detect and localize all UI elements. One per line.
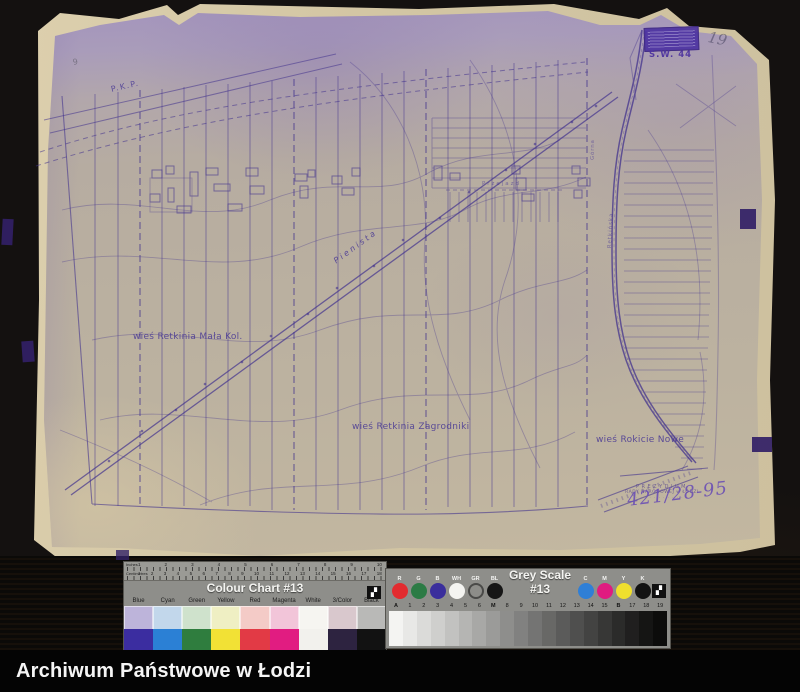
grey-step-label: 17 bbox=[625, 601, 639, 611]
ruler-ticks bbox=[127, 576, 383, 580]
patch-circle bbox=[468, 583, 484, 599]
grey-step-label: 4 bbox=[445, 601, 459, 611]
colour-patch: Y bbox=[614, 576, 633, 599]
ruler-unit-inches: Inches bbox=[126, 562, 138, 567]
grey-step-label: 9 bbox=[514, 601, 528, 611]
colour-column-label: Green bbox=[182, 597, 211, 606]
grey-step: M bbox=[486, 601, 500, 646]
grey-step: 12 bbox=[556, 601, 570, 646]
grey-step-patch bbox=[389, 611, 403, 646]
grey-step: 14 bbox=[584, 601, 598, 646]
colour-column: Red bbox=[240, 597, 269, 650]
colour-patch: BL bbox=[485, 576, 504, 599]
colour-swatch-dark bbox=[299, 629, 328, 650]
tape-mark bbox=[116, 550, 129, 560]
colour-swatch-dark bbox=[270, 629, 299, 650]
colour-swatch-light bbox=[299, 606, 328, 629]
grey-step-label: 3 bbox=[431, 601, 445, 611]
colour-column: Yellow bbox=[211, 597, 240, 650]
patch-label: C bbox=[584, 576, 588, 583]
colour-swatch-light bbox=[270, 606, 299, 629]
grey-step: 5 bbox=[459, 601, 473, 646]
patch-circle bbox=[578, 583, 594, 599]
grey-step-label: 5 bbox=[459, 601, 473, 611]
chart-maker-logo: ▞ bbox=[652, 584, 666, 598]
rgb-patches: R G B WH bbox=[390, 576, 504, 599]
colour-column: Blue bbox=[124, 597, 153, 650]
archive-name: Archiwum Państwowe w Łodzi bbox=[16, 660, 311, 683]
grey-step-label: 10 bbox=[528, 601, 542, 611]
patch-label: K bbox=[641, 576, 645, 583]
colour-column-label: Yellow bbox=[211, 597, 240, 606]
ruler-unit-centimetres: Centimetres bbox=[126, 571, 148, 576]
colour-column: Black bbox=[357, 597, 386, 650]
grey-step-patch bbox=[459, 611, 473, 646]
colour-patch: G bbox=[409, 576, 428, 599]
patch-label: R bbox=[398, 576, 402, 583]
grey-step-patch bbox=[486, 611, 500, 646]
grey-step: B bbox=[612, 601, 626, 646]
grey-step-label: 14 bbox=[584, 601, 598, 611]
grey-step-label: 11 bbox=[542, 601, 556, 611]
grey-step-label: 19 bbox=[653, 601, 667, 611]
grey-scale-title: Grey Scale #13 bbox=[504, 568, 576, 599]
patch-label: M bbox=[602, 576, 607, 583]
grey-steps: A 1 2 3 4 bbox=[389, 601, 667, 646]
grey-step-patch bbox=[625, 611, 639, 646]
tape-mark bbox=[752, 437, 772, 452]
grey-step: 6 bbox=[472, 601, 486, 646]
grey-step: 18 bbox=[639, 601, 653, 646]
colour-patch: WH bbox=[447, 576, 466, 599]
patch-circle bbox=[635, 583, 651, 599]
grey-step-patch bbox=[445, 611, 459, 646]
colour-column: White bbox=[299, 597, 328, 650]
grey-step: 8 bbox=[500, 601, 514, 646]
grey-step-label: A bbox=[389, 601, 403, 611]
colour-columns: Blue Cyan Green Yellow bbox=[124, 597, 386, 650]
grey-step: 15 bbox=[598, 601, 612, 646]
colour-column-label: Blue bbox=[124, 597, 153, 606]
colour-swatch-dark bbox=[328, 629, 357, 650]
colour-column-label: 3/Color bbox=[328, 597, 357, 606]
colour-swatch-dark bbox=[153, 629, 182, 650]
grey-step: 17 bbox=[625, 601, 639, 646]
patch-circle bbox=[616, 583, 632, 599]
grey-step-patch bbox=[514, 611, 528, 646]
patch-label: B bbox=[436, 576, 440, 583]
archival-scan: P.K.P. Pienista wieś Retkinia Mała Kol. … bbox=[0, 0, 800, 692]
colour-swatch-dark bbox=[124, 629, 153, 650]
grey-step: 3 bbox=[431, 601, 445, 646]
grey-step: A bbox=[389, 601, 403, 646]
grey-step-label: 8 bbox=[500, 601, 514, 611]
colour-column: Magenta bbox=[270, 597, 299, 650]
grey-step: 4 bbox=[445, 601, 459, 646]
grey-step-patch bbox=[556, 611, 570, 646]
grey-step: 1 bbox=[403, 601, 417, 646]
grey-step-patch bbox=[403, 611, 417, 646]
grey-step-label: M bbox=[486, 601, 500, 611]
grey-step: 10 bbox=[528, 601, 542, 646]
village-label-retkinia-mala: wieś Retkinia Mała Kol. bbox=[133, 332, 243, 342]
grey-step: 2 bbox=[417, 601, 431, 646]
grey-step-patch bbox=[472, 611, 486, 646]
tape-mark bbox=[1, 219, 13, 246]
grey-step-label: 18 bbox=[639, 601, 653, 611]
grey-step-patch bbox=[542, 611, 556, 646]
patch-circle bbox=[392, 583, 408, 599]
patch-circle bbox=[430, 583, 446, 599]
colour-swatch-dark bbox=[357, 629, 386, 650]
grey-step-patch bbox=[570, 611, 584, 646]
colour-patch: C bbox=[576, 576, 595, 599]
colour-swatch-light bbox=[240, 606, 269, 629]
colour-swatch-light bbox=[357, 606, 386, 629]
colour-swatch-light bbox=[211, 606, 240, 629]
colour-chart-title: Colour Chart #13 bbox=[124, 581, 386, 595]
village-label-retkinia-zagrodniki: wieś Retkinia Zagrodniki bbox=[352, 422, 469, 432]
boundary-label-vertical: Górna bbox=[590, 139, 596, 160]
colour-chart-card: Inches 12345678910 Centimetres 123456789… bbox=[124, 562, 386, 650]
patch-label: WH bbox=[452, 576, 461, 583]
colour-column-label: Red bbox=[240, 597, 269, 606]
colour-column: Green bbox=[182, 597, 211, 650]
grey-step-patch bbox=[653, 611, 667, 646]
patch-label: G bbox=[416, 576, 420, 583]
chart-maker-logo: ▞ bbox=[367, 586, 381, 599]
grey-step: 11 bbox=[542, 601, 556, 646]
grey-step-patch bbox=[639, 611, 653, 646]
grey-step: 19 bbox=[653, 601, 667, 646]
patch-label: BL bbox=[491, 576, 498, 583]
colour-swatch-dark bbox=[211, 629, 240, 650]
grey-step-patch bbox=[528, 611, 542, 646]
colour-swatch-light bbox=[182, 606, 211, 629]
colour-column-label: Magenta bbox=[270, 597, 299, 606]
cmyk-patches: C M Y K bbox=[576, 576, 652, 599]
grey-step: 9 bbox=[514, 601, 528, 646]
grey-step-patch bbox=[431, 611, 445, 646]
colour-swatch-light bbox=[328, 606, 357, 629]
colour-column-label: White bbox=[299, 597, 328, 606]
patch-label: Y bbox=[622, 576, 626, 583]
village-label-rokicie-nowe: wieś Rokicie Nowe bbox=[596, 435, 684, 445]
patch-label: GR bbox=[471, 576, 479, 583]
grey-step-label: 6 bbox=[472, 601, 486, 611]
patch-circle bbox=[487, 583, 503, 599]
grey-step-label: 1 bbox=[403, 601, 417, 611]
colour-swatch-light bbox=[153, 606, 182, 629]
colour-patch: GR bbox=[466, 576, 485, 599]
patch-circle bbox=[411, 583, 427, 599]
colour-column: Cyan bbox=[153, 597, 182, 650]
patch-circle bbox=[449, 583, 465, 599]
colour-swatch-light bbox=[124, 606, 153, 629]
colour-column: 3/Color bbox=[328, 597, 357, 650]
grey-step-label: B bbox=[612, 601, 626, 611]
ruler: Inches 12345678910 Centimetres 123456789… bbox=[124, 562, 386, 581]
colour-column-label: Cyan bbox=[153, 597, 182, 606]
colour-patch: B bbox=[428, 576, 447, 599]
archive-footer-bar: Archiwum Państwowe w Łodzi bbox=[0, 650, 800, 692]
colour-patch: R bbox=[390, 576, 409, 599]
patch-circle bbox=[597, 583, 613, 599]
colour-patch: K bbox=[633, 576, 652, 599]
colour-swatch-dark bbox=[240, 629, 269, 650]
grey-step-patch bbox=[612, 611, 626, 646]
tape-mark bbox=[21, 341, 34, 363]
grey-step-label: 13 bbox=[570, 601, 584, 611]
stamp-code-label: S.W. 44 bbox=[649, 50, 692, 60]
grey-step-patch bbox=[417, 611, 431, 646]
archive-ink-stamp bbox=[644, 26, 700, 52]
grey-scale-card: R G B WH bbox=[386, 569, 670, 648]
grey-step-label: 2 bbox=[417, 601, 431, 611]
grey-step-patch bbox=[598, 611, 612, 646]
grey-step: 13 bbox=[570, 601, 584, 646]
grey-scale-patches: R G B WH bbox=[390, 571, 666, 599]
grey-step-patch bbox=[500, 611, 514, 646]
colour-swatch-dark bbox=[182, 629, 211, 650]
pencil-note-19: 19 bbox=[706, 28, 728, 50]
colour-patch: M bbox=[595, 576, 614, 599]
grey-step-patch bbox=[584, 611, 598, 646]
road-label-small: Przejazd bbox=[482, 181, 521, 187]
grey-step-label: 15 bbox=[598, 601, 612, 611]
grey-step-label: 12 bbox=[556, 601, 570, 611]
tape-mark bbox=[740, 209, 756, 229]
